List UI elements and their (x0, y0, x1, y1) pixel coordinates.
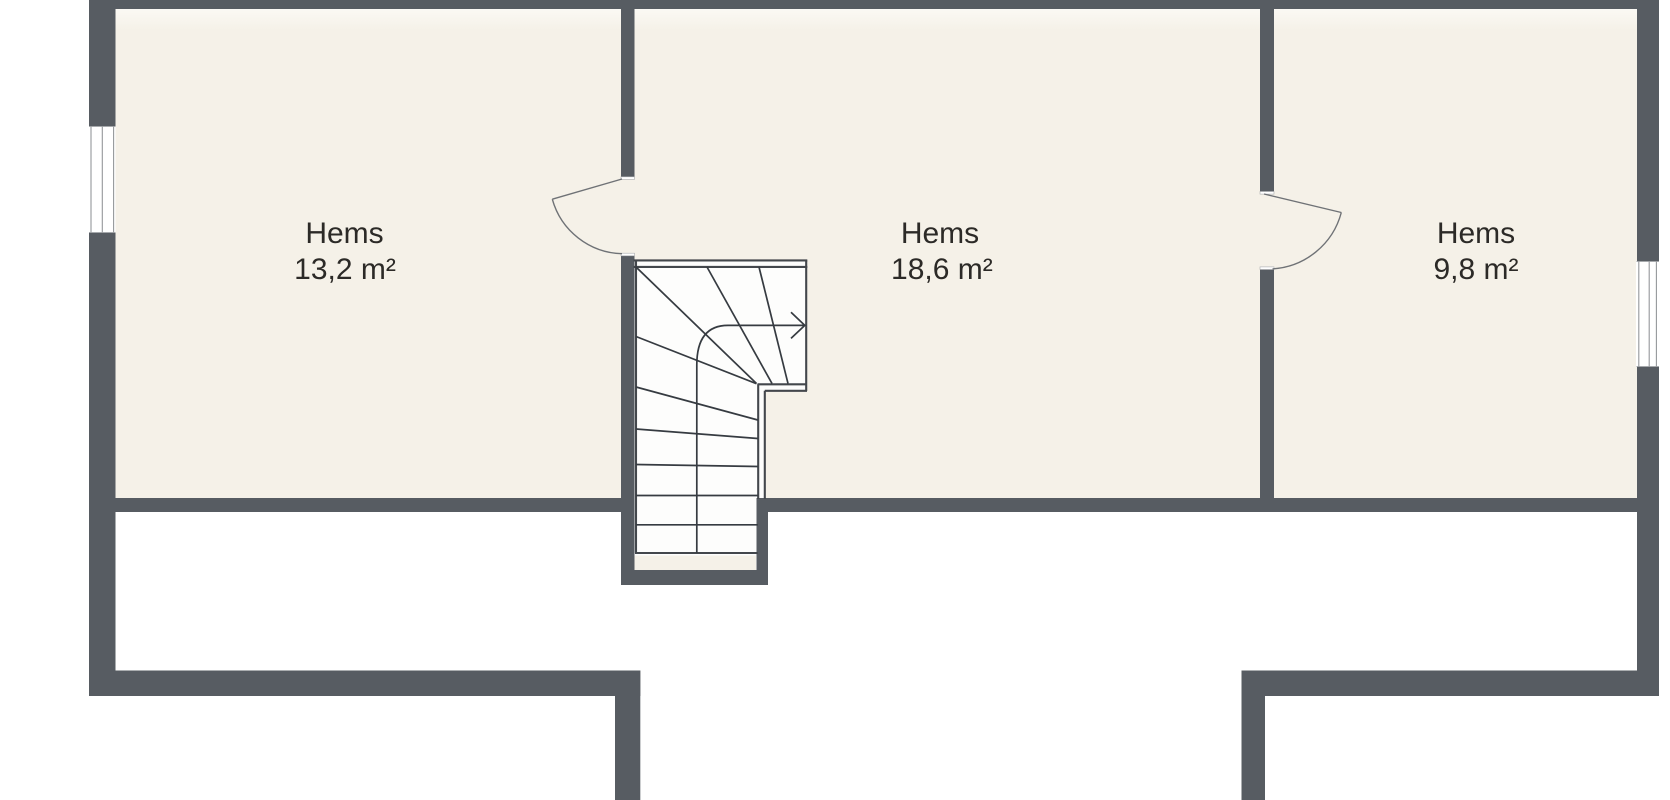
svg-text:Hems: Hems (901, 217, 979, 250)
svg-text:13,2 m²: 13,2 m² (294, 253, 396, 286)
svg-text:18,6 m²: 18,6 m² (891, 253, 993, 286)
svg-text:9,8 m²: 9,8 m² (1433, 253, 1518, 286)
svg-text:Hems: Hems (1437, 217, 1515, 250)
svg-text:Hems: Hems (305, 217, 383, 250)
